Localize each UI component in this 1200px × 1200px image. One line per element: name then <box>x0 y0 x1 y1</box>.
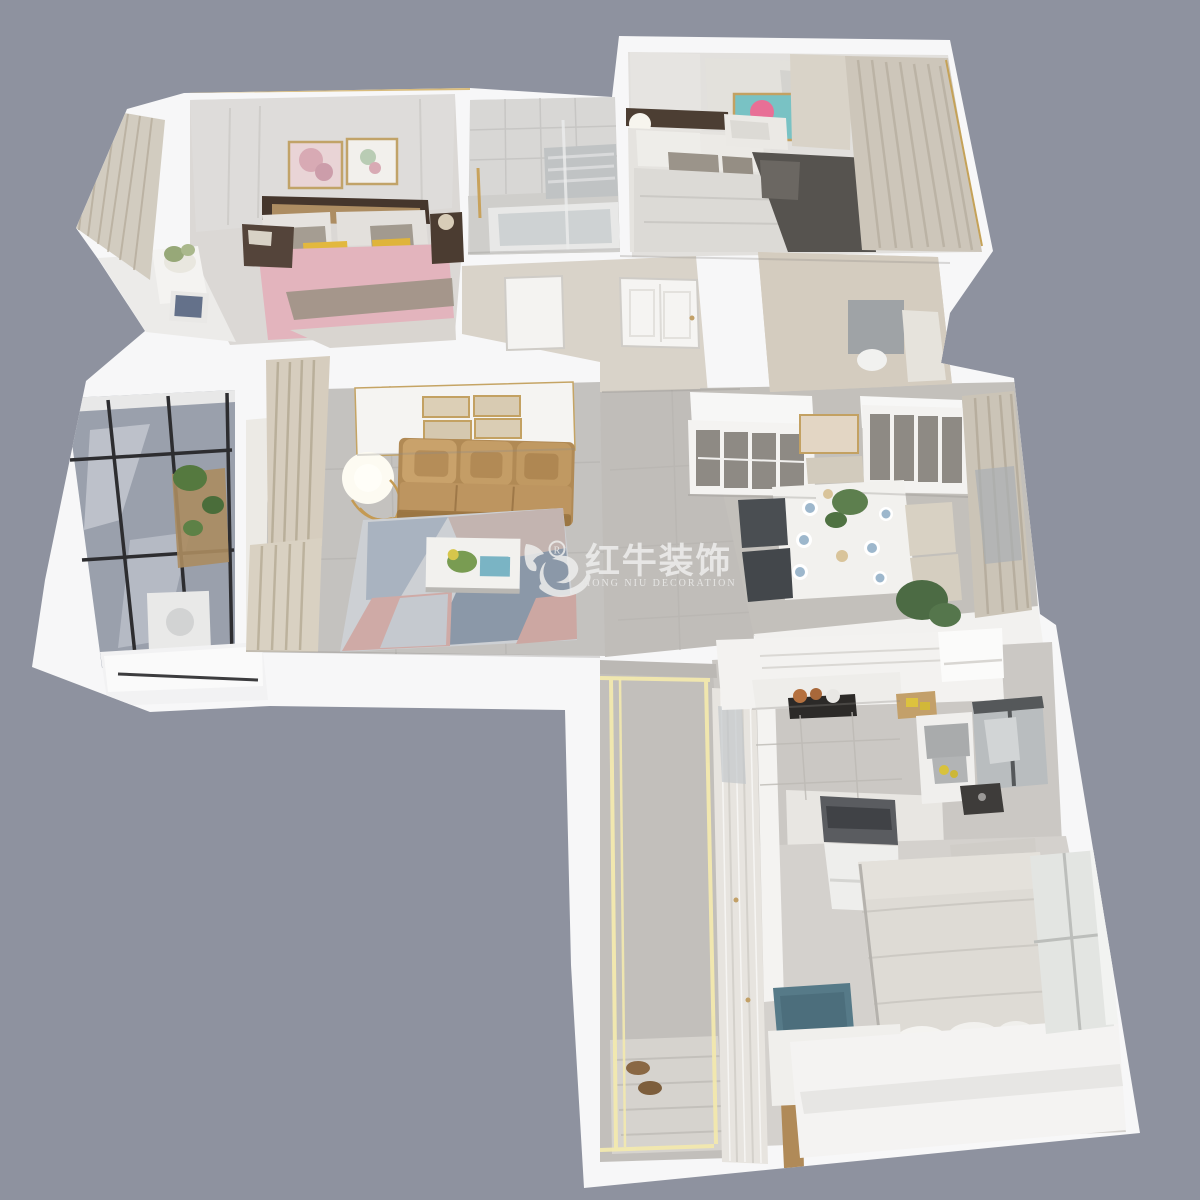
svg-text:红牛装饰: 红牛装饰 <box>585 542 732 581</box>
svg-text:HONG NIU DECORATION: HONG NIU DECORATION <box>583 578 737 589</box>
svg-text:R: R <box>554 546 561 557</box>
